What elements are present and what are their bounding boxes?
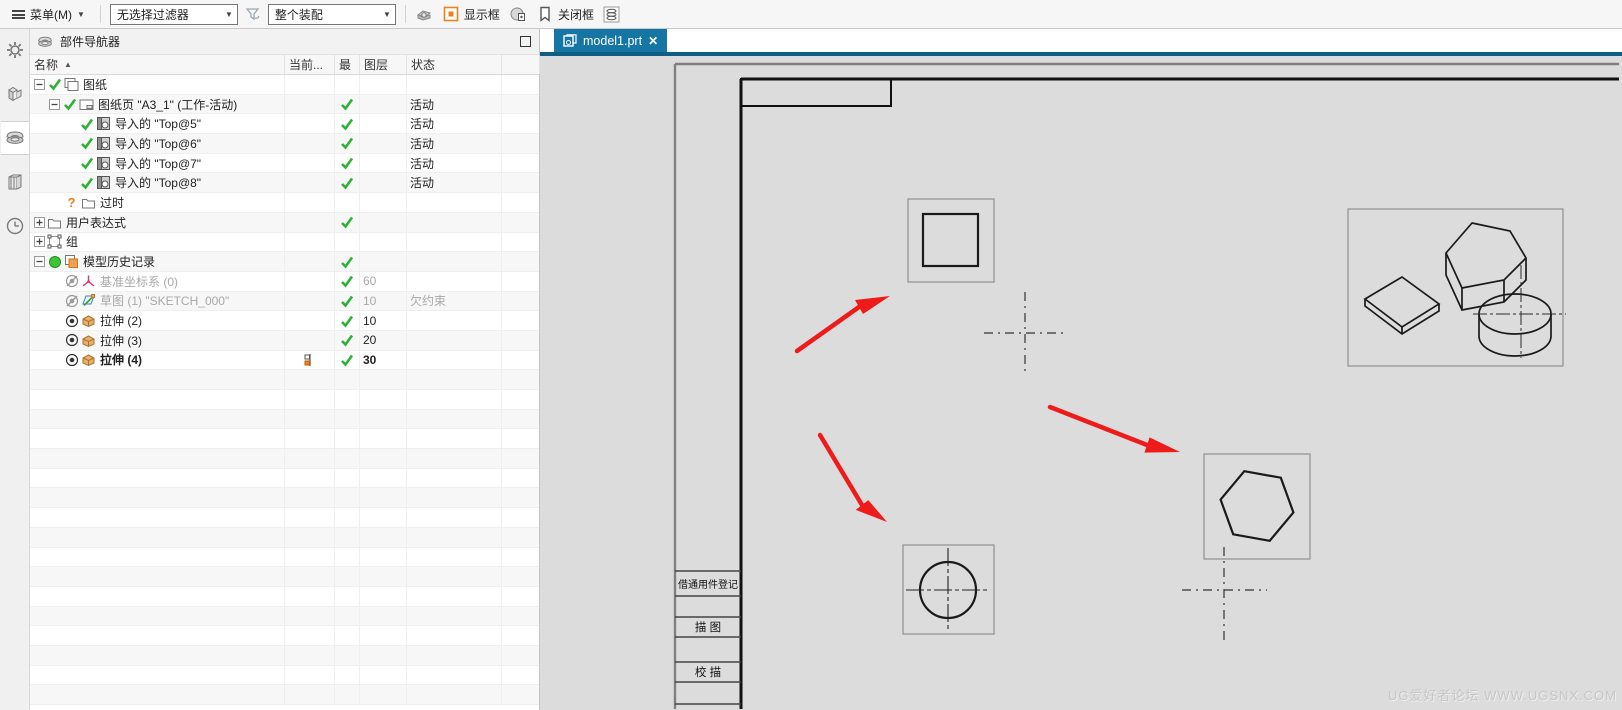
drawing-view-circle[interactable]: [903, 545, 994, 634]
tree-row[interactable]: 模型历史记录: [30, 252, 539, 272]
iso-plate: [1365, 277, 1439, 334]
iso-hex-prism: [1446, 223, 1526, 310]
check-icon: [340, 274, 355, 289]
status-value: [407, 213, 502, 232]
center-mark-1: [984, 292, 1065, 375]
red-arrow-3: [1050, 407, 1180, 453]
layer-value: [360, 252, 407, 271]
check-icon: [47, 77, 62, 92]
tree-row[interactable]: 基准坐标系 (0)60: [30, 272, 539, 292]
expand-icon[interactable]: [34, 236, 45, 247]
part-navigator-header: 部件导航器: [30, 29, 539, 55]
datum-csys-icon: [81, 274, 96, 289]
tree-row-empty: [30, 646, 539, 666]
tree-row-empty: [30, 449, 539, 469]
imported-view-icon: [96, 116, 111, 131]
collapse-icon[interactable]: [49, 99, 60, 110]
check-icon: [62, 97, 77, 112]
clock-icon: [5, 216, 25, 236]
maximize-icon[interactable]: [520, 36, 531, 47]
tree-row-empty: [30, 488, 539, 508]
tree-item-label: 拉伸 (3): [100, 332, 142, 349]
layer-value: [360, 75, 407, 94]
column-header-layer[interactable]: 图层: [360, 55, 407, 74]
drawing-view-hexagon[interactable]: [1204, 454, 1310, 559]
column-header-name[interactable]: 名称 ▲: [30, 55, 285, 74]
tree-item-label: 导入的 "Top@5": [115, 115, 201, 132]
tab-model1-prt[interactable]: model1.prt ✕: [554, 29, 667, 52]
tree-item-label: 导入的 "Top@8": [115, 174, 201, 191]
check-icon: [79, 136, 94, 151]
column-header-latest[interactable]: 最: [335, 55, 360, 74]
imported-view-icon: [96, 136, 111, 151]
status-value: 活动: [407, 173, 502, 192]
tree-row-empty: [30, 370, 539, 390]
tree-row[interactable]: ?过时: [30, 193, 539, 213]
eye-visible-icon[interactable]: [64, 352, 79, 367]
tree-item-label: 导入的 "Top@7": [115, 155, 201, 172]
tree-row[interactable]: 用户表达式: [30, 213, 539, 233]
folder-icon: [47, 215, 62, 230]
check-icon: [340, 136, 355, 151]
divider: [405, 5, 406, 23]
collapse-icon[interactable]: [34, 256, 45, 267]
part-navigator-panel: 部件导航器 名称 ▲ 当前... 最 图层 状态 图纸图纸页 "A3_1" (工…: [30, 29, 540, 710]
menu-label: 菜单(M): [30, 6, 72, 23]
show-box-label: 显示框: [464, 6, 500, 23]
part-tab-bar: model1.prt ✕: [540, 29, 1622, 56]
title-block-row3: 校 描: [695, 665, 721, 679]
status-value: [407, 351, 502, 370]
tree-row[interactable]: 拉伸 (2)10: [30, 311, 539, 331]
drawing-sheet-icon: [79, 97, 94, 112]
current-feature-icon: [302, 352, 317, 367]
part-file-icon: [563, 34, 577, 47]
tree-item-label: 模型历史记录: [83, 253, 155, 270]
model-history-icon: [64, 254, 79, 269]
collapse-icon[interactable]: [34, 79, 45, 90]
tree-column-headers: 名称 ▲ 当前... 最 图层 状态: [30, 55, 539, 75]
drawing-view-isometric[interactable]: [1348, 209, 1566, 366]
tree-row-empty: [30, 469, 539, 489]
extrude-icon: [81, 313, 96, 328]
tree-row-empty: [30, 666, 539, 686]
status-value: 活动: [407, 95, 502, 114]
graphics-region: model1.prt ✕: [540, 29, 1622, 710]
layer-value: [360, 114, 407, 133]
eye-visible-icon[interactable]: [64, 333, 79, 348]
tree-item-label: 过时: [100, 194, 124, 211]
sidebar-item-history[interactable]: [1, 209, 29, 243]
chevron-down-icon: ▼: [383, 10, 391, 19]
assembly-blocks-icon: [5, 84, 25, 104]
tree-row[interactable]: 拉伸 (4)30: [30, 351, 539, 371]
feature-tree: 图纸图纸页 "A3_1" (工作-活动)活动导入的 "Top@5"活动导入的 "…: [30, 75, 539, 710]
layer-value: [360, 213, 407, 232]
column-header-status[interactable]: 状态: [407, 55, 502, 74]
selection-filter-dropdown[interactable]: 无选择过滤器 ▼: [110, 4, 238, 25]
question-icon: ?: [64, 195, 79, 210]
column-header-current[interactable]: 当前...: [285, 55, 335, 74]
show-box-icon: [442, 5, 460, 23]
status-value: 活动: [407, 154, 502, 173]
tree-row[interactable]: 草图 (1) "SKETCH_000"10欠约束: [30, 292, 539, 312]
status-value: [407, 252, 502, 271]
status-value: [407, 233, 502, 252]
chevron-down-icon: ▼: [225, 10, 233, 19]
watermark: UG爱好者论坛 WWW.UGSNX.COM: [1388, 685, 1617, 704]
check-icon: [340, 116, 355, 131]
tree-row-empty: [30, 410, 539, 430]
check-icon: [340, 313, 355, 328]
drawing-canvas[interactable]: 借通用件登记 描 图 校 描: [540, 56, 1622, 710]
menu-button[interactable]: 菜单(M) ▼: [6, 4, 91, 25]
coil-icon[interactable]: [603, 5, 621, 23]
check-icon: [340, 352, 355, 367]
tree-item-label: 拉伸 (4): [100, 351, 142, 368]
nx-application: 菜单(M) ▼ 无选择过滤器 ▼ 整个装配 ▼ 显示框: [0, 0, 1622, 710]
check-icon: [340, 175, 355, 190]
snap-point-icon[interactable]: [415, 5, 433, 23]
tree-row-empty: [30, 685, 539, 705]
scope-value: 整个装配: [275, 6, 377, 23]
panel-title: 部件导航器: [60, 33, 514, 50]
group-icon: [47, 234, 62, 249]
layer-value: [360, 173, 407, 192]
layer-value: [360, 134, 407, 153]
drawing-view-square[interactable]: [908, 199, 994, 282]
books-icon: [5, 172, 25, 192]
check-icon: [340, 156, 355, 171]
annotation-arrows: [797, 296, 1180, 522]
status-value: 欠约束: [407, 292, 502, 311]
tree-item-label: 图纸页 "A3_1" (工作-活动): [98, 96, 237, 113]
check-icon: [79, 156, 94, 171]
layer-value: [360, 154, 407, 173]
folder-icon: [81, 195, 96, 210]
check-icon: [79, 116, 94, 131]
tree-row[interactable]: 图纸: [30, 75, 539, 95]
check-icon: [340, 215, 355, 230]
tree-row-empty: [30, 508, 539, 528]
divider: [100, 5, 101, 23]
close-icon[interactable]: ✕: [648, 34, 658, 48]
eye-visible-icon[interactable]: [64, 313, 79, 328]
tree-item-label: 组: [66, 233, 78, 250]
selection-filter-value: 无选择过滤器: [117, 6, 219, 23]
layer-value: [360, 233, 407, 252]
layer-value: 10: [360, 311, 407, 330]
tree-row[interactable]: 导入的 "Top@7"活动: [30, 154, 539, 174]
check-icon: [340, 333, 355, 348]
tree-row-empty: [30, 548, 539, 568]
tree-item-label: 用户表达式: [66, 214, 126, 231]
eye-hidden-icon[interactable]: [64, 293, 79, 308]
sheet-border: [675, 64, 1619, 709]
red-arrow-2: [820, 435, 887, 522]
sort-ascending-icon: ▲: [64, 60, 72, 69]
red-arrow-1: [797, 296, 890, 351]
iso-cylinder: [1479, 294, 1551, 356]
layer-value: [360, 193, 407, 212]
active-dot-icon: [47, 254, 62, 269]
tree-row-empty: [30, 528, 539, 548]
eye-hidden-icon[interactable]: [64, 274, 79, 289]
close-box-icon: [536, 5, 554, 23]
tree-row[interactable]: 导入的 "Top@6"活动: [30, 134, 539, 154]
show-box-button[interactable]: 显示框: [439, 3, 503, 25]
frame-zone-box: [741, 79, 891, 106]
sidebar-item-settings[interactable]: [1, 33, 29, 67]
expand-icon[interactable]: [34, 217, 45, 228]
status-value: [407, 311, 502, 330]
sidebar-item-assembly-navigator[interactable]: [1, 77, 29, 111]
tree-row-empty: [30, 626, 539, 646]
title-block-row1: 借通用件登记: [678, 578, 738, 591]
close-box-button[interactable]: 关闭框: [533, 3, 597, 25]
tab-title: model1.prt: [583, 34, 642, 48]
status-value: [407, 75, 502, 94]
layer-value: 10: [360, 292, 407, 311]
imported-view-icon: [96, 156, 111, 171]
tree-item-label: 拉伸 (2): [100, 312, 142, 329]
layer-value: 20: [360, 331, 407, 350]
layer-value: 30: [360, 351, 407, 370]
status-value: [407, 272, 502, 291]
tree-row-empty: [30, 390, 539, 410]
tree-row-empty: [30, 607, 539, 627]
check-icon: [340, 97, 355, 112]
hamburger-icon: [12, 10, 25, 19]
sidebar-item-reuse-library[interactable]: [1, 165, 29, 199]
scope-dropdown[interactable]: 整个装配 ▼: [268, 4, 396, 25]
status-value: 活动: [407, 134, 502, 153]
status-value: [407, 193, 502, 212]
drawing-frame: [741, 79, 1619, 709]
status-value: [407, 331, 502, 350]
title-block-row2: 描 图: [695, 620, 721, 634]
tree-row[interactable]: 导入的 "Top@8"活动: [30, 173, 539, 193]
clear-filter-icon[interactable]: [244, 5, 262, 23]
extrude-icon: [81, 352, 96, 367]
close-box-label: 关闭框: [558, 6, 594, 23]
sidebar-item-part-navigator[interactable]: [1, 121, 29, 155]
drawing-sheets-icon: [64, 77, 79, 92]
tree-item-label: 基准坐标系 (0): [100, 273, 178, 290]
tree-item-label: 草图 (1) "SKETCH_000": [100, 292, 229, 309]
sketch-icon: [81, 293, 96, 308]
gear-icon: [5, 40, 25, 60]
tree-row[interactable]: 图纸页 "A3_1" (工作-活动)活动: [30, 95, 539, 115]
check-icon: [340, 293, 355, 308]
check-icon: [340, 254, 355, 269]
extrude-icon: [81, 333, 96, 348]
layer-value: [360, 95, 407, 114]
resource-bar: [0, 29, 30, 710]
check-icon: [79, 175, 94, 190]
tree-row-empty: [30, 429, 539, 449]
iso-centerlines: [1473, 265, 1566, 358]
tree-row-empty: [30, 567, 539, 587]
tree-row[interactable]: 组: [30, 233, 539, 253]
tree-row[interactable]: 导入的 "Top@5"活动: [30, 114, 539, 134]
chevron-down-icon: ▼: [77, 10, 85, 19]
top-toolbar: 菜单(M) ▼ 无选择过滤器 ▼ 整个装配 ▼ 显示框: [0, 0, 1622, 29]
tree-row-empty: [30, 587, 539, 607]
status-value: 活动: [407, 114, 502, 133]
part-navigator-icon: [36, 34, 54, 50]
tree-row[interactable]: 拉伸 (3)20: [30, 331, 539, 351]
layer-value: 60: [360, 272, 407, 291]
column-header-extra: [502, 55, 540, 74]
part-navigator-icon: [4, 128, 26, 148]
rotate-sphere-icon[interactable]: [509, 5, 527, 23]
tree-item-label: 导入的 "Top@6": [115, 135, 201, 152]
imported-view-icon: [96, 175, 111, 190]
title-block: 借通用件登记 描 图 校 描: [675, 571, 741, 704]
center-mark-2: [1182, 547, 1267, 641]
tree-item-label: 图纸: [83, 76, 107, 93]
